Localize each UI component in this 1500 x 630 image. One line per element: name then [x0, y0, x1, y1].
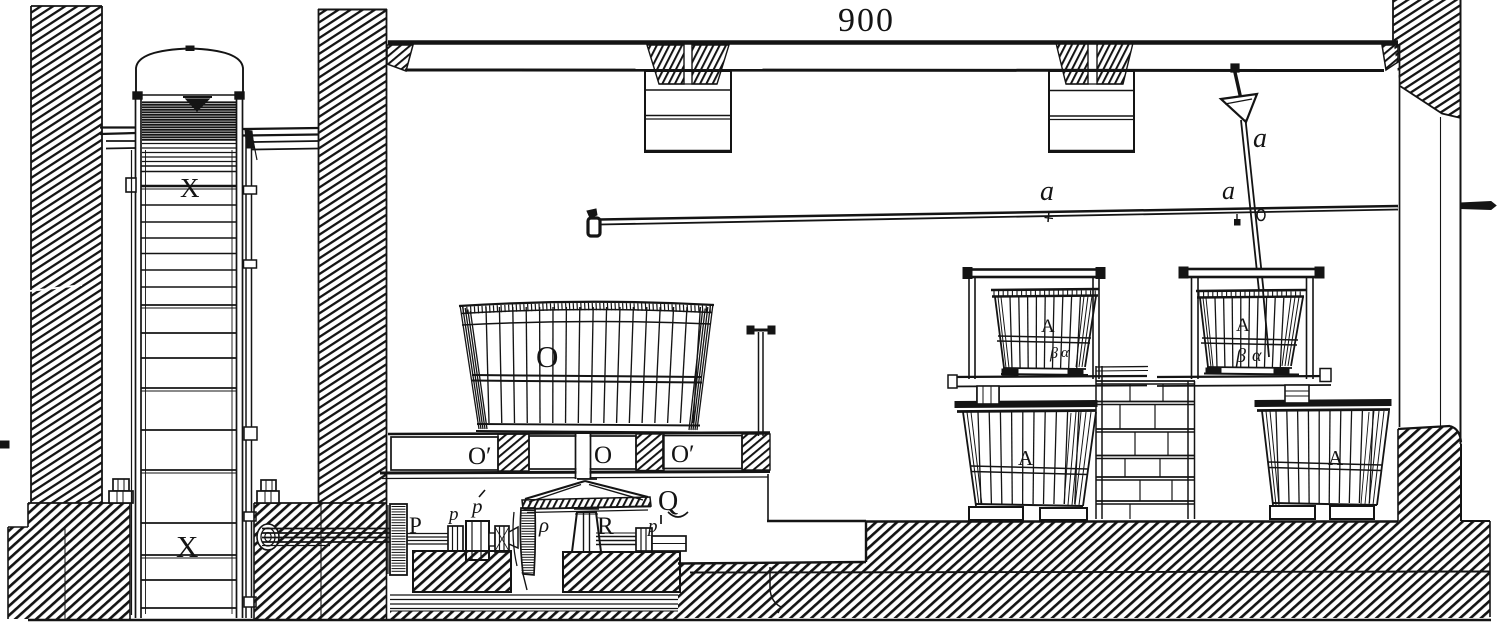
svg-text:β: β: [1049, 345, 1058, 362]
svg-text:O: O: [594, 442, 612, 469]
svg-text:X: X: [176, 529, 198, 564]
svg-text:A: A: [1328, 446, 1344, 470]
svg-text:β: β: [1235, 345, 1246, 367]
svg-text:p: p: [470, 494, 483, 518]
svg-text:α: α: [1252, 345, 1262, 365]
svg-text:P: P: [409, 513, 422, 538]
svg-text:A: A: [1236, 315, 1250, 336]
svg-text:p: p: [646, 516, 658, 537]
svg-text:O′: O′: [671, 441, 695, 468]
svg-text:A: A: [1018, 446, 1034, 470]
svg-text:900: 900: [838, 2, 895, 39]
svg-text:p: p: [447, 504, 459, 525]
svg-text:a: a: [1253, 123, 1267, 154]
svg-text:O′: O′: [468, 443, 492, 470]
svg-text:A: A: [1041, 316, 1055, 337]
svg-text:a: a: [1222, 176, 1235, 205]
svg-text:a: a: [1040, 176, 1054, 207]
svg-text:ρ: ρ: [538, 513, 549, 537]
svg-text:O: O: [536, 339, 558, 374]
svg-text:X: X: [180, 173, 200, 203]
svg-text:α: α: [1061, 345, 1070, 361]
